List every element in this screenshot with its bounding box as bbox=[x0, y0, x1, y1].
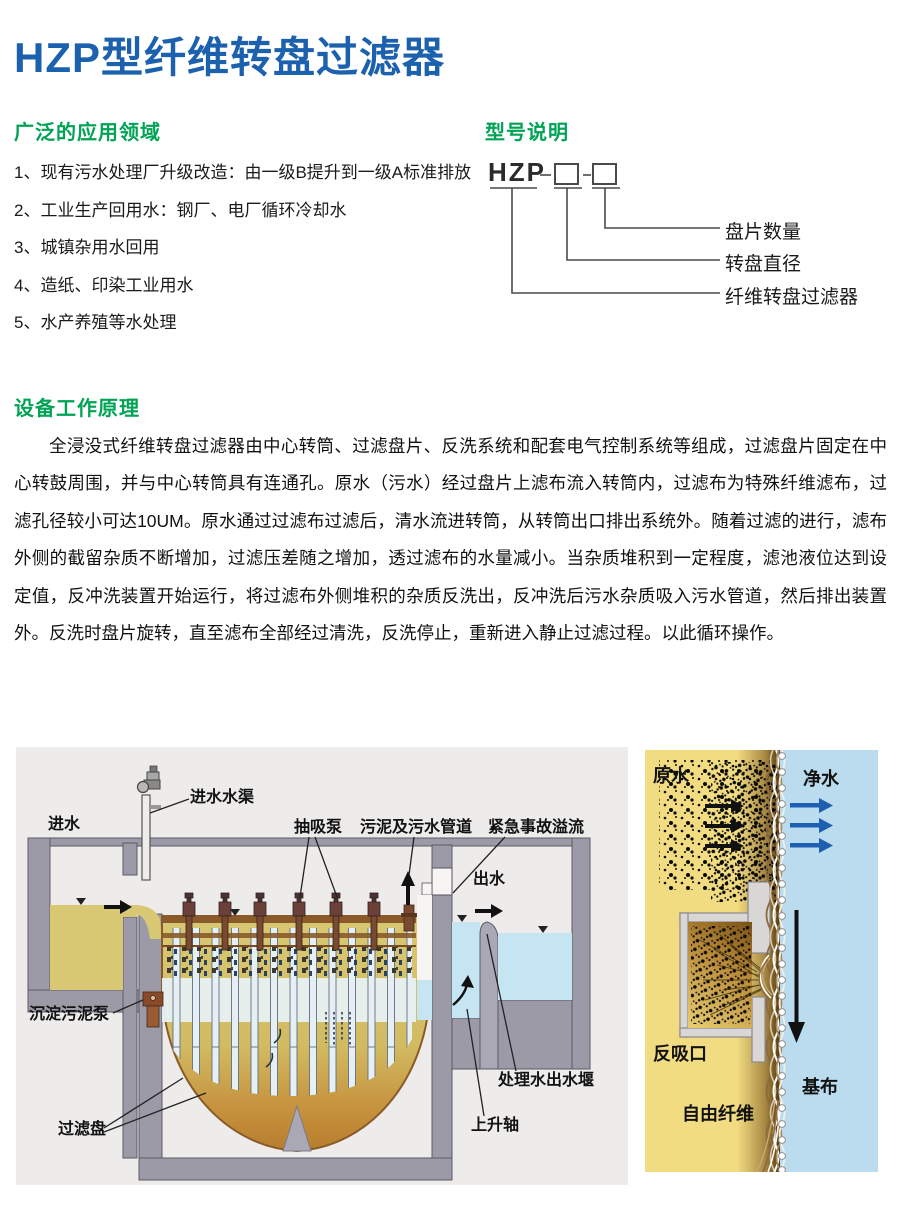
model-heading: 型号说明 bbox=[485, 116, 569, 145]
tank-label-filter-disc: 过滤盘 bbox=[58, 1115, 106, 1139]
overflow-step bbox=[422, 883, 432, 895]
membrane-label-clean-water: 净水 bbox=[803, 765, 839, 791]
tank-label-outlet-weir: 处理水出水堰 bbox=[498, 1066, 594, 1090]
application-item: 2、工业生产回用水：钢厂、电厂循环冷却水 bbox=[14, 192, 484, 230]
model-box-2 bbox=[593, 164, 616, 184]
membrane-label-free-fiber: 自由纤维 bbox=[682, 1100, 754, 1126]
model-designation-diagram: HZP 盘片数量 转盘直径 纤维转盘过滤器 bbox=[482, 155, 897, 333]
tank-label-outlet: 出水 bbox=[473, 865, 505, 889]
tank-diagram-panel: 进水 进水水渠 抽吸泵 污泥及污水管道 紧急事故溢流 出水 沉淀污泥泵 过滤盘 … bbox=[16, 747, 628, 1185]
applications-heading: 广泛的应用领域 bbox=[14, 116, 161, 145]
application-item: 4、造纸、印染工业用水 bbox=[14, 267, 484, 305]
tank-label-sediment-pump: 沉淀污泥泵 bbox=[29, 1000, 109, 1024]
tank-label-inlet-channel: 进水水渠 bbox=[190, 783, 254, 807]
application-item: 3、城镇杂用水回用 bbox=[14, 229, 484, 267]
application-item: 5、水产养殖等水处理 bbox=[14, 304, 484, 342]
model-label-disc-count: 盘片数量 bbox=[725, 217, 801, 244]
page-title: HZP型纤维转盘过滤器 bbox=[14, 24, 445, 85]
tank-label-emergency-overflow: 紧急事故溢流 bbox=[488, 813, 584, 837]
outlet-pool-2 bbox=[498, 933, 572, 1000]
tank-label-inlet: 进水 bbox=[48, 810, 80, 834]
raw-flow-arrows bbox=[705, 799, 744, 853]
clean-flow-arrows bbox=[790, 798, 833, 853]
principle-heading: 设备工作原理 bbox=[14, 392, 140, 421]
tank-label-sludge-pipe: 污泥及污水管道 bbox=[360, 813, 472, 837]
model-box-1 bbox=[555, 164, 578, 184]
model-code: HZP bbox=[488, 157, 546, 188]
membrane-filtration-illustration bbox=[645, 750, 878, 1172]
emergency-overflow-box bbox=[432, 868, 452, 895]
membrane-label-raw-water: 原水 bbox=[653, 762, 689, 788]
model-label-product: 纤维转盘过滤器 bbox=[725, 282, 858, 309]
application-item: 1、现有污水处理厂升级改造：由一级B提升到一级A标准排放 bbox=[14, 154, 484, 192]
membrane-diagram-panel: 原水 净水 反吸口 基布 自由纤维 bbox=[645, 750, 878, 1172]
membrane-label-base-cloth: 基布 bbox=[802, 1073, 838, 1099]
principle-text: 全浸没式纤维转盘过滤器由中心转筒、过滤盘片、反洗系统和配套电气控制系统等组成，过… bbox=[14, 428, 887, 652]
riser-channel bbox=[417, 895, 432, 1020]
membrane-label-back-suction: 反吸口 bbox=[653, 1040, 707, 1066]
model-label-disc-diameter: 转盘直径 bbox=[725, 249, 801, 276]
tank-label-suction-pump: 抽吸泵 bbox=[294, 813, 342, 837]
tank-label-rising-shaft: 上升轴 bbox=[471, 1111, 519, 1135]
applications-list: 1、现有污水处理厂升级改造：由一级B提升到一级A标准排放 2、工业生产回用水：钢… bbox=[14, 154, 484, 342]
